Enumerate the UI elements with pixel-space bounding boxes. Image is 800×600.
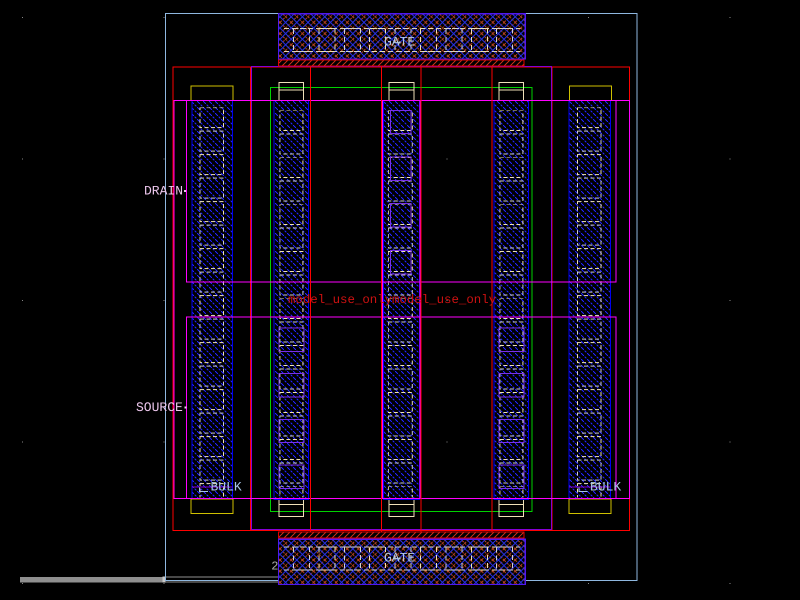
svg-text:model_use_only: model_use_only xyxy=(288,293,393,307)
svg-text:BULK: BULK xyxy=(211,480,242,495)
svg-text:DRAIN: DRAIN xyxy=(144,184,183,199)
svg-text:SOURCE: SOURCE xyxy=(136,400,183,415)
svg-text:model_use_only: model_use_only xyxy=(392,293,497,307)
svg-text:BULK: BULK xyxy=(590,480,621,495)
